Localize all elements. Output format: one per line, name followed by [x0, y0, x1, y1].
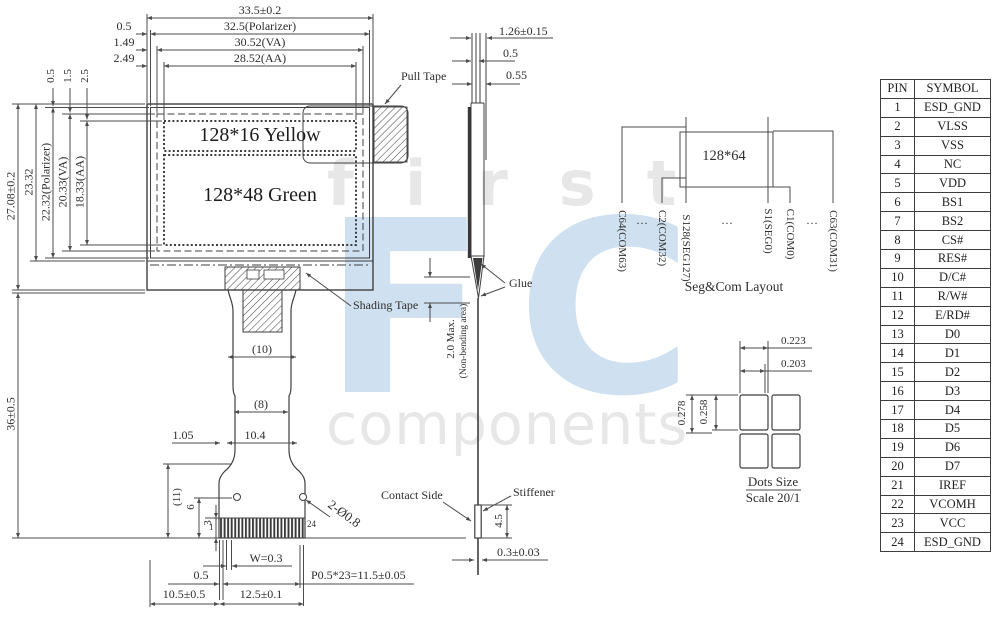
pin-table-row: 12E/RD# — [881, 306, 991, 325]
dim-dot-h: 0.258 — [698, 400, 710, 425]
pin-table-row: 19D6 — [881, 438, 991, 457]
pin-number-last: 24 — [307, 520, 316, 530]
glue-leader-bottom — [481, 287, 505, 296]
pin-table-row: 13D0 — [881, 325, 991, 344]
dim-height-glass: 23.32 — [22, 169, 35, 196]
dots-size-caption: Dots Size — [748, 475, 798, 489]
fpc-contact-pads — [219, 518, 305, 538]
pin-table-row: 2VLSS — [881, 117, 991, 136]
pin-table-row: 17D4 — [881, 401, 991, 420]
pin-table-row: 21IREF — [881, 476, 991, 495]
dim-voffset-va: 1.5 — [62, 69, 74, 83]
pin-table-row: 22VCOMH — [881, 495, 991, 514]
pin-table-row: 9RES# — [881, 250, 991, 269]
dim-height-aa: 18.33(AA) — [73, 156, 86, 208]
dim-offset-aa: 2.49 — [114, 52, 135, 65]
dim-voffset-polarizer: 0.5 — [45, 69, 57, 83]
dim-height-polarizer: 22.32(Polarizer) — [39, 143, 52, 221]
shading-tape-label: Shading Tape — [353, 299, 418, 312]
front-view-outline — [147, 104, 408, 538]
dots-size-scale: Scale 20/1 — [746, 491, 801, 505]
glue-label: Glue — [509, 277, 532, 290]
pin-table-row: 20D7 — [881, 457, 991, 476]
dots-size-squares — [740, 395, 800, 468]
dim-t-0-55: 0.55 — [506, 69, 527, 82]
dim-voffset-aa: 2.5 — [79, 69, 91, 83]
pin-table-row: 15D2 — [881, 363, 991, 382]
dim-fpc-6: 6 — [185, 504, 197, 510]
dim-width-aa: 28.52(AA) — [234, 52, 286, 65]
contact-side-leader — [443, 502, 471, 521]
dim-height-va: 20.33(VA) — [56, 157, 69, 208]
dim-fpc-width-10: (10) — [252, 343, 272, 356]
pin-table-row: 14D1 — [881, 344, 991, 363]
side-view-outline — [468, 33, 486, 575]
dim-bend-max: 2.0 Max. — [445, 319, 457, 358]
dim-t-0-5: 0.5 — [503, 47, 518, 60]
dim-fpc-1-05: 1.05 — [173, 429, 194, 442]
glue-leader-top — [481, 264, 505, 283]
segcom-pin-c64: C64(COM63) — [616, 210, 628, 272]
shading-tape-hatch — [225, 267, 300, 332]
pin-table-row: 11R/W# — [881, 287, 991, 306]
pin-table-row: 3VSS — [881, 136, 991, 155]
dim-fpc-12-5: 12.5±0.1 — [240, 588, 283, 601]
pin-table-header-row: PIN SYMBOL — [881, 80, 991, 99]
pull-tape-hatch — [374, 107, 407, 162]
dim-fpc-width-8: (8) — [254, 398, 268, 411]
segcom-pin-c1: C1(COM0) — [784, 209, 796, 260]
pin-table-row: 10D/C# — [881, 268, 991, 287]
segcom-matrix: 128*64 — [702, 149, 746, 165]
side-polarizer — [468, 107, 471, 258]
segcom-ellipsis-middle: ··· — [721, 217, 733, 230]
pin-table: PIN SYMBOL 1ESD_GND2VLSS3VSS4NC5VDD6BS17… — [880, 79, 991, 552]
pin-table-row: 7BS2 — [881, 212, 991, 231]
dim-height-total: 27.08±0.2 — [4, 172, 17, 221]
dim-fpc-10-4: 10.4 — [245, 429, 266, 442]
segcom-pin-s1: S1(SEG0) — [762, 208, 774, 253]
side-stiffener — [475, 505, 481, 538]
display-area-yellow: 128*16 Yellow — [199, 124, 320, 146]
drawing-sheet: first FC components — [0, 0, 1000, 617]
pin-table-body: 1ESD_GND2VLSS3VSS4NC5VDD6BS17BS28CS#9RES… — [881, 98, 991, 551]
segcom-pin-s128: S128(SEG127) — [680, 214, 692, 281]
pin-table-row: 8CS# — [881, 231, 991, 250]
dim-fpc-thickness: 0.3±0.03 — [497, 546, 540, 559]
dim-dot-h-pitch: 0.278 — [676, 401, 688, 426]
segcom-ellipsis-left: ··· — [636, 217, 648, 230]
segcom-pin-c63: C63(COM31) — [827, 210, 839, 272]
dim-dot-w: 0.203 — [781, 358, 806, 370]
dim-thickness: 1.26±0.15 — [499, 25, 548, 38]
dim-offset-va: 1.49 — [114, 36, 135, 49]
dim-stiffener-height: 4.5 — [493, 514, 505, 528]
fpc-hole-right — [300, 494, 307, 501]
dim-width-polarizer: 32.5(Polarizer) — [224, 20, 296, 33]
pin-table-row: 24ESD_GND — [881, 533, 991, 552]
pin-table-row: 23VCC — [881, 514, 991, 533]
fpc-hole-left — [234, 494, 241, 501]
dim-width-total: 33.5±0.2 — [239, 4, 282, 17]
dim-dot-w-pitch: 0.223 — [781, 335, 806, 347]
pin-table-header-pin: PIN — [881, 80, 915, 99]
display-area-green: 128*48 Green — [203, 184, 317, 206]
dim-pad-offset: 0.5 — [194, 569, 209, 582]
dim-pad-width: W=0.3 — [249, 552, 282, 565]
dim-offset-polarizer: 0.5 — [117, 20, 132, 33]
pin-table-row: 5VDD — [881, 174, 991, 193]
dim-bend-note: (Non-bending area) — [459, 304, 469, 379]
pin-table-row: 18D5 — [881, 420, 991, 439]
pin-number-first: 1 — [209, 523, 214, 533]
dim-pitch: P0.5*23=11.5±0.05 — [311, 569, 406, 582]
stiffener-label: Stiffener — [513, 486, 555, 499]
side-view-dimensions — [424, 38, 553, 560]
segcom-pin-c2: C2(COM32) — [656, 210, 668, 266]
segcom-caption: Seg&Com Layout — [685, 280, 784, 295]
pin-table-row: 1ESD_GND — [881, 98, 991, 117]
pin-table-row: 6BS1 — [881, 193, 991, 212]
dim-fpc-10-5: 10.5±0.5 — [163, 588, 206, 601]
pin-table-row: 4NC — [881, 155, 991, 174]
pull-tape-label: Pull Tape — [401, 70, 446, 83]
segcom-ellipsis-right: ··· — [806, 217, 818, 230]
dim-module-height: 36±0.5 — [4, 397, 17, 431]
pin-table-row: 16D3 — [881, 382, 991, 401]
pull-tape-leader — [385, 85, 401, 104]
dim-fpc-11: (11) — [171, 488, 183, 506]
pin-table-header-symbol: SYMBOL — [915, 80, 991, 99]
dim-width-va: 30.52(VA) — [235, 36, 286, 49]
contact-side-label: Contact Side — [381, 489, 443, 502]
